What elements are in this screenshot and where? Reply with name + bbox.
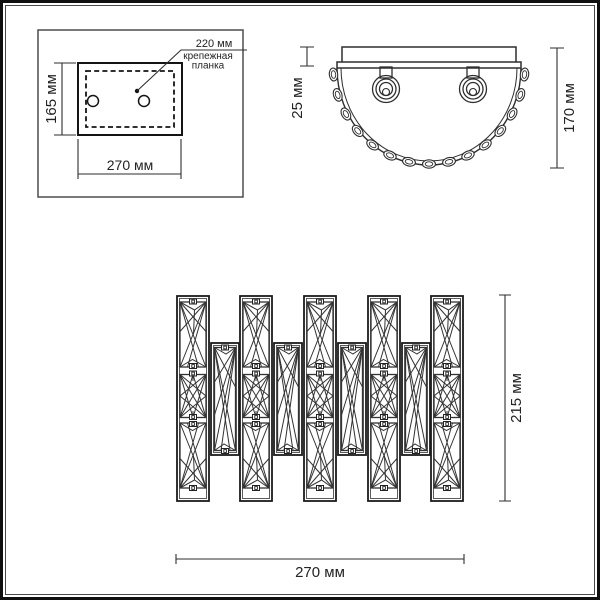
dimension-lamp-width: 270 мм [176, 554, 464, 581]
top-view: 25 мм 170 мм [289, 47, 578, 168]
crystal-bar-main-5 [431, 296, 463, 501]
crystal-bar-offset-3 [338, 343, 366, 455]
plate-depth-value: 25 мм [289, 77, 306, 118]
bracket-width-label: 220 мм [196, 38, 233, 50]
lamp-width-value: 270 мм [295, 564, 345, 581]
crystal-bar-offset-1 [211, 343, 239, 455]
lamp-technical-drawing: 220 мм крепежная планка 165 мм 270 мм [0, 0, 600, 600]
dimension-lamp-height: 215 мм [499, 295, 525, 501]
dimensional-drawing-sheet: 220 мм крепежная планка 165 мм 270 мм [0, 0, 600, 600]
plate-height-value: 165 мм [43, 74, 60, 124]
bracket-name-line2: планка [192, 61, 225, 72]
mounting-bar [342, 47, 516, 63]
body-rim-inner [341, 68, 517, 161]
dimension-plate-depth: 25 мм [289, 47, 314, 119]
crystal-bar-main-2 [240, 296, 272, 501]
lamp-socket-right [460, 67, 487, 103]
total-depth-value: 170 мм [561, 83, 578, 133]
crystal-bar-main-4 [368, 296, 400, 501]
lamp-socket-left [373, 67, 400, 103]
crystal-bar-offset-2 [274, 343, 302, 455]
crystal-bar-main-3 [304, 296, 336, 501]
front-view: 215 мм 270 мм [176, 295, 525, 581]
crystal-bar-main-1 [177, 296, 209, 501]
base-plate [337, 62, 521, 68]
crystal-beads-rim [329, 68, 530, 169]
lamp-height-value: 215 мм [508, 373, 525, 423]
crystal-bar-offset-4 [402, 343, 430, 455]
mounting-plate-view: 220 мм крепежная планка 165 мм 270 мм [38, 30, 247, 197]
plate-width-value: 270 мм [107, 157, 154, 173]
body-rim-outer [337, 68, 521, 165]
dimension-total-depth: 170 мм [550, 48, 578, 168]
